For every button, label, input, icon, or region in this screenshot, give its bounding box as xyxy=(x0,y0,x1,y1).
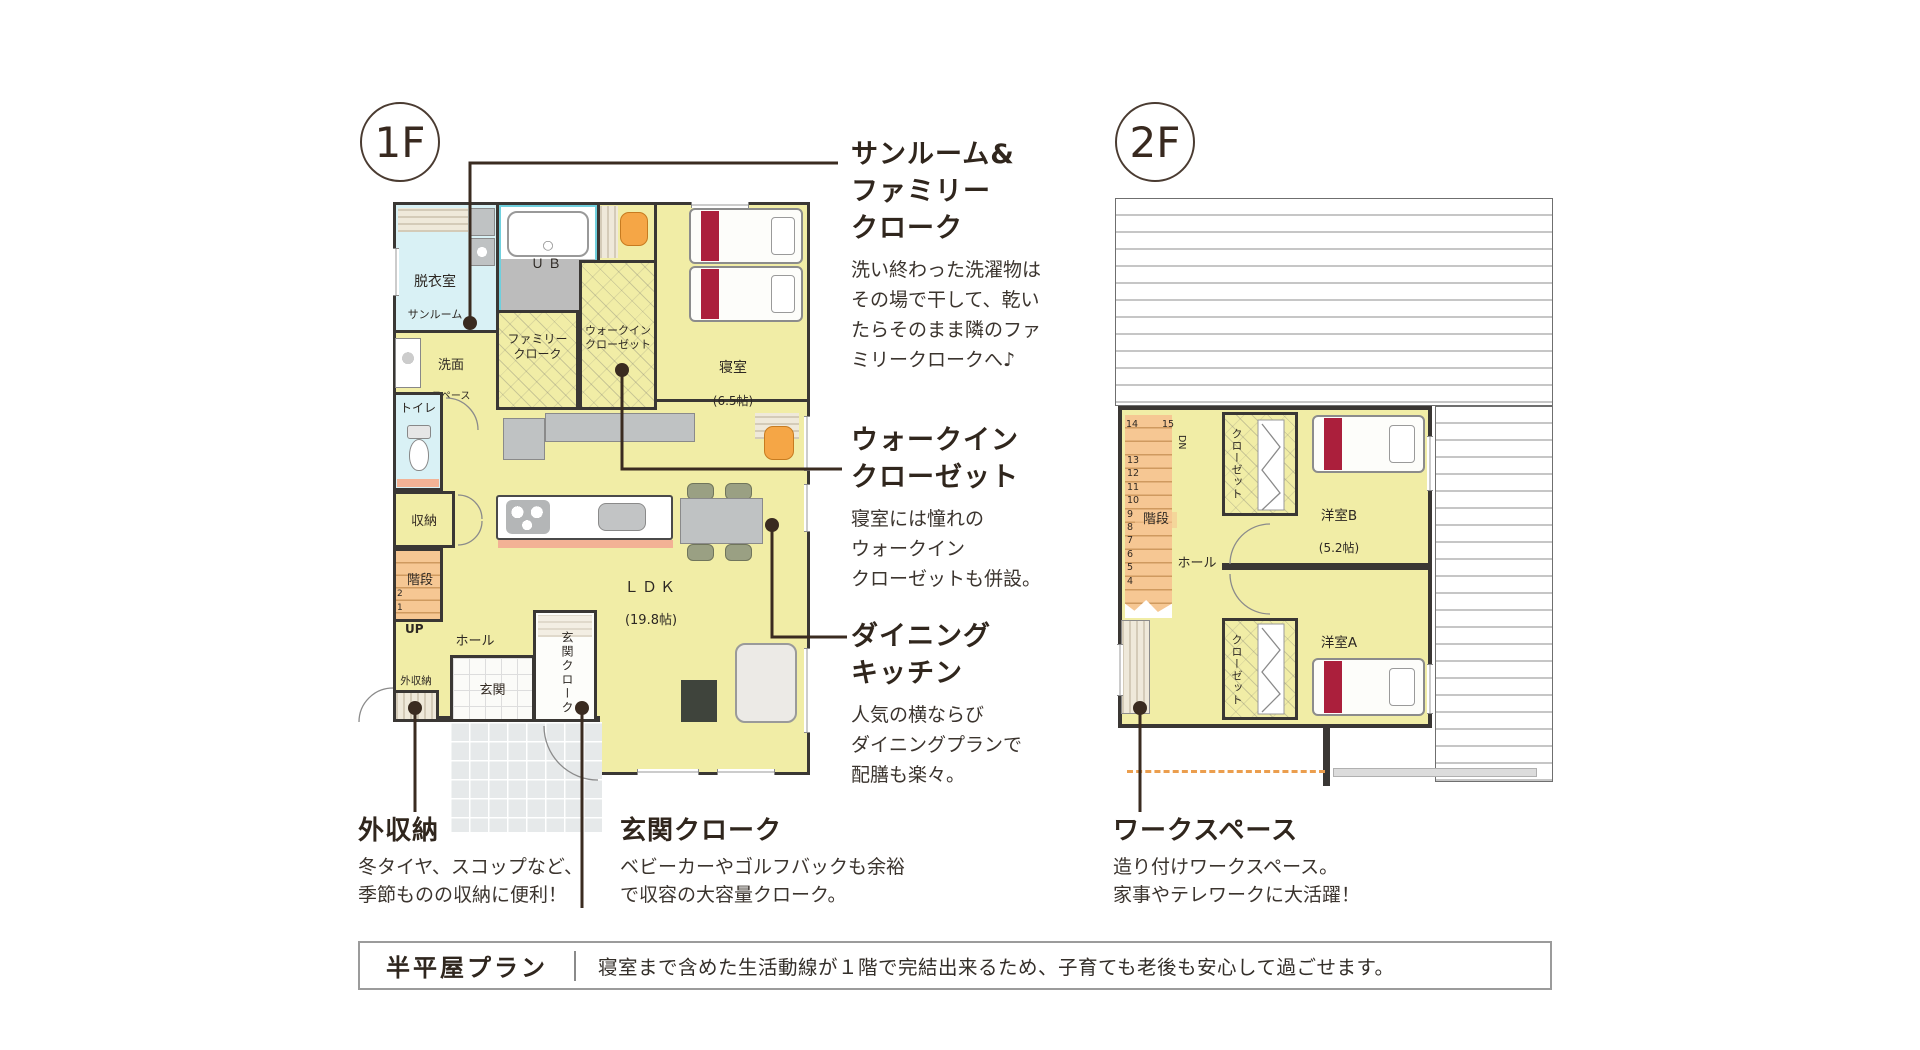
label-bedroom-main: 寝室 xyxy=(678,360,788,378)
window xyxy=(637,769,699,775)
annotation-dining-title: ダイニング キッチン xyxy=(851,618,1071,692)
eave-gutter-bar xyxy=(1333,768,1537,777)
annotation-dining-body: 人気の横ならび ダイニングプランで 配膳も楽々。 xyxy=(851,700,1071,790)
annotation-wic-body: 寝室には憧れの ウォークイン クローゼットも併設。 xyxy=(851,504,1071,594)
washstand-icon xyxy=(395,338,421,388)
room-outdoor-storage xyxy=(393,690,439,722)
window xyxy=(804,484,810,532)
kitchen-sink-icon xyxy=(598,503,646,531)
desk-chair-icon xyxy=(620,212,648,246)
annotation-sunroom-body: 洗い終わった洗濯物は その場で干して、乾い たらそのまま隣のファ ミリークローク… xyxy=(851,255,1071,375)
room-entrance-cloak: 玄関クローク xyxy=(533,610,597,722)
floor2-plan: 14 15 DN 13 12 11 10 9 8 7 6 5 4 階段 ホール … xyxy=(1115,196,1555,796)
roof-hatch-right xyxy=(1435,406,1553,782)
room-stairs-1f: 階段 2 1 xyxy=(393,548,443,622)
floor1-plan: 脱衣室 サンルーム ＵＢ 寝室 (6.5帖) ファミリー クローク xyxy=(393,196,817,846)
room-entrance: 玄関 xyxy=(450,655,535,722)
label-dn: DN xyxy=(1173,428,1187,456)
dining-chair-icon xyxy=(687,544,714,561)
annotation-wic: ウォークイン クローゼット 寝室には憧れの ウォークイン クローゼットも併設。 xyxy=(851,422,1071,594)
bed-stripe xyxy=(1324,418,1342,470)
window xyxy=(717,769,775,775)
floorplan-canvas: 1F 2F 脱衣室 サンルーム ＵＢ xyxy=(0,0,1920,1050)
toilet-bowl-icon xyxy=(409,439,429,471)
washer-icon xyxy=(469,208,495,236)
stair-number: 5 xyxy=(1127,561,1143,574)
toilet-tank-icon xyxy=(407,425,431,439)
label-closet-a: クローゼット xyxy=(1227,626,1243,714)
label-stairs-1f: 階段 xyxy=(400,573,440,589)
label-room-b-main: 洋室B xyxy=(1301,508,1377,525)
plan-banner: 半平屋プラン 寝室まで含めた生活動線が１階で完結出来るため、子育ても老後も安心し… xyxy=(358,941,1552,990)
bed-stripe xyxy=(701,211,719,261)
label-ldk: ＬＤＫ (19.8帖) xyxy=(603,562,699,646)
stair-number-2: 2 xyxy=(397,589,407,600)
label-entrance: 玄関 xyxy=(479,679,505,698)
sunroom-deck-hatch xyxy=(398,208,468,232)
workspace-counter xyxy=(1121,620,1150,714)
room-toilet: トイレ xyxy=(393,392,443,491)
window xyxy=(1427,436,1433,491)
annotation-outdoor-storage-body: 冬タイヤ、スコップなど、 季節ものの収納に便利！ xyxy=(358,854,658,909)
bed-pillow xyxy=(771,217,795,255)
floor-1f-label: 1F xyxy=(375,118,426,167)
annotation-sunroom-title: サンルーム& ファミリー クローク xyxy=(851,136,1071,247)
label-hall-1f: ホール xyxy=(443,634,507,650)
label-toilet: トイレ xyxy=(396,401,440,416)
floor1-ldk-extension xyxy=(597,716,810,775)
dining-chair-icon xyxy=(725,544,752,561)
sofa-icon xyxy=(735,643,797,723)
label-outdoor-storage: 外収納 xyxy=(389,675,443,688)
bed-pillow xyxy=(1389,668,1415,706)
label-room-b-size: (5.2帖) xyxy=(1301,541,1377,556)
banner-body: 寝室まで含めた生活動線が１階で完結出来るため、子育ても老後も安心して過ごせます。 xyxy=(576,951,1395,980)
label-entrance-cloak: 玄関クローク xyxy=(558,629,574,717)
bed-pillow xyxy=(1389,425,1415,463)
label-datsuishitsu: 脱衣室 サンルーム xyxy=(395,258,475,338)
label-bedroom-size: (6.5帖) xyxy=(678,394,788,409)
bed-icon-room-a xyxy=(1312,658,1425,716)
banner-title: 半平屋プラン xyxy=(360,948,574,983)
stair-number: 11 xyxy=(1127,481,1143,494)
cooktop-icon xyxy=(506,500,550,534)
kitchen-back-counter xyxy=(545,413,695,442)
stair-number: 10 xyxy=(1127,494,1143,507)
bathtub-icon xyxy=(507,211,589,257)
label-walk-in-closet: ウォークイン クローゼット xyxy=(579,324,657,352)
annotation-sunroom: サンルーム& ファミリー クローク 洗い終わった洗濯物は その場で干して、乾い … xyxy=(851,136,1071,375)
stair-number: 7 xyxy=(1127,534,1143,547)
study-chair-icon xyxy=(764,426,794,460)
bed-icon-room-b xyxy=(1312,415,1425,473)
toilet-mat xyxy=(397,479,439,487)
label-room-b: 洋室B (5.2帖) xyxy=(1301,492,1377,573)
annotation-dining: ダイニング キッチン 人気の横ならび ダイニングプランで 配膳も楽々。 xyxy=(851,618,1071,790)
bed-icon-2 xyxy=(689,266,803,322)
annotation-entrance-cloak-body: ベビーカーやゴルフバックも余裕 で収容の大容量クローク。 xyxy=(620,854,990,909)
label-ldk-size: (19.8帖) xyxy=(603,613,699,629)
label-storage: 収納 xyxy=(411,510,437,529)
stair-number-1: 1 xyxy=(397,603,407,614)
fridge-icon xyxy=(503,418,545,460)
window xyxy=(691,202,749,208)
eave-dashed-line xyxy=(1127,770,1325,773)
floor-2f-badge: 2F xyxy=(1115,102,1195,182)
floor-2f-label: 2F xyxy=(1130,118,1181,167)
desk-counter-hatch xyxy=(600,206,618,258)
annotation-entrance-cloak-title: 玄関クローク xyxy=(620,814,990,848)
window xyxy=(804,648,810,733)
label-room-a-main: 洋室A xyxy=(1301,635,1377,652)
tv-board-icon xyxy=(681,680,717,722)
window xyxy=(804,416,810,471)
roof-hatch-top xyxy=(1115,198,1553,406)
bed-pillow xyxy=(771,275,795,313)
stair-number: 12 xyxy=(1127,467,1143,480)
bed-icon-1 xyxy=(689,208,803,264)
label-closet-b: クローゼット xyxy=(1227,420,1243,508)
window xyxy=(393,248,399,296)
stair-number-14: 14 xyxy=(1126,419,1144,431)
label-sunroom-sub: サンルーム xyxy=(395,308,475,322)
annotation-workspace: ワークスペース 造り付けワークスペース。 家事やテレワークに大活躍！ xyxy=(1113,814,1493,909)
dining-table-icon xyxy=(680,498,763,544)
label-up: UP xyxy=(405,622,439,637)
stair-number: 13 xyxy=(1127,454,1143,467)
label-ldk-main: ＬＤＫ xyxy=(603,578,699,597)
kitchen-mat xyxy=(498,540,673,548)
annotation-workspace-body: 造り付けワークスペース。 家事やテレワークに大活躍！ xyxy=(1113,854,1493,909)
label-hall-2f: ホール xyxy=(1171,556,1223,572)
annotation-outdoor-storage: 外収納 冬タイヤ、スコップなど、 季節ものの収納に便利！ xyxy=(358,814,658,909)
bed-stripe xyxy=(701,269,719,319)
stair-number: 6 xyxy=(1127,548,1143,561)
bed-stripe xyxy=(1324,661,1342,713)
room-storage: 収納 xyxy=(393,491,455,548)
annotation-outdoor-storage-title: 外収納 xyxy=(358,814,658,848)
label-stairs-2f: 階段 xyxy=(1135,512,1177,528)
exterior-wall-stub xyxy=(1323,728,1330,786)
window xyxy=(1427,664,1433,714)
annotation-entrance-cloak: 玄関クローク ベビーカーやゴルフバックも余裕 で収容の大容量クローク。 xyxy=(620,814,990,909)
annotation-workspace-title: ワークスペース xyxy=(1113,814,1493,848)
kitchen-island xyxy=(496,495,673,540)
label-datsuishitsu-main: 脱衣室 xyxy=(395,274,475,292)
label-family-cloak: ファミリー クローク xyxy=(496,332,579,362)
label-senmen-main: 洗面 xyxy=(419,358,483,374)
floor-1f-badge: 1F xyxy=(360,102,440,182)
annotation-wic-title: ウォークイン クローゼット xyxy=(851,422,1071,496)
window xyxy=(1117,644,1123,696)
stair-number: 4 xyxy=(1127,575,1143,588)
